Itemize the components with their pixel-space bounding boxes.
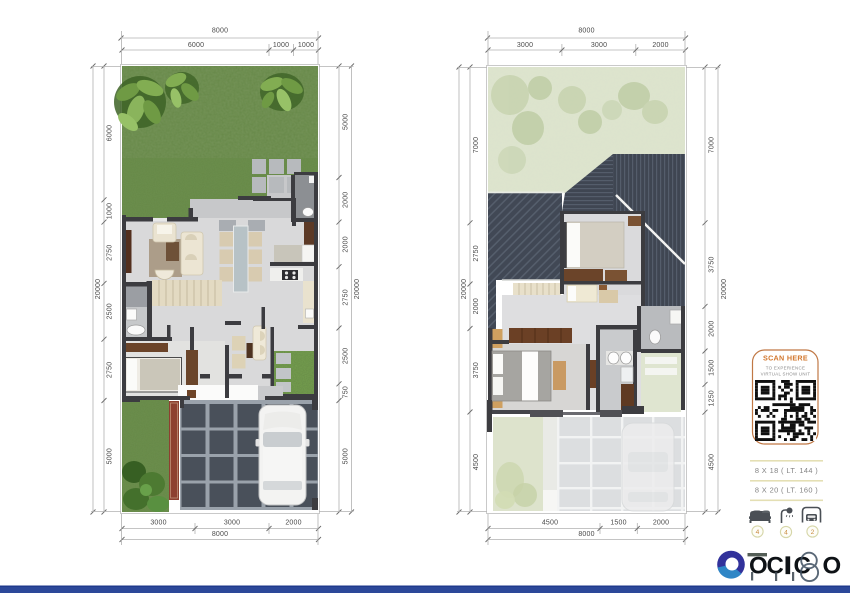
svg-text:6000: 6000 [107,125,114,141]
svg-text:20000: 20000 [95,279,102,299]
svg-text:2750: 2750 [473,245,480,261]
svg-text:5000: 5000 [343,114,350,130]
svg-text:2000: 2000 [652,42,668,49]
svg-text:5000: 5000 [107,448,114,464]
svg-text:7000: 7000 [709,137,716,153]
svg-text:VIRTUAL SHOW UNIT: VIRTUAL SHOW UNIT [761,372,811,377]
svg-text:7000: 7000 [473,137,480,153]
svg-text:3750: 3750 [709,256,716,272]
svg-text:8 X 18 ( LT. 144 ): 8 X 18 ( LT. 144 ) [755,466,818,475]
svg-text:8000: 8000 [212,28,228,35]
svg-text:3000: 3000 [591,42,607,49]
svg-text:2750: 2750 [107,245,114,261]
svg-text:4500: 4500 [542,520,558,527]
svg-text:20000: 20000 [721,279,728,299]
svg-text:TO EXPERIENCE: TO EXPERIENCE [766,366,805,371]
svg-text:3750: 3750 [473,362,480,378]
svg-text:3000: 3000 [150,520,166,527]
svg-text:2000: 2000 [653,520,669,527]
svg-text:2000: 2000 [709,321,716,337]
svg-text:1250: 1250 [709,390,716,406]
svg-text:8000: 8000 [212,531,228,538]
svg-text:4: 4 [756,529,760,536]
svg-text:2000: 2000 [343,192,350,208]
svg-text:20000: 20000 [354,279,361,299]
svg-text:20000: 20000 [461,279,468,299]
svg-text:2500: 2500 [343,348,350,364]
svg-text:1000: 1000 [273,42,289,49]
svg-text:2000: 2000 [473,298,480,314]
svg-text:4500: 4500 [473,454,480,470]
svg-text:I: I [785,553,792,580]
svg-text:750: 750 [343,386,350,398]
svg-text:2000: 2000 [343,236,350,252]
svg-text:6000: 6000 [188,42,204,49]
svg-text:3000: 3000 [224,520,240,527]
svg-text:5000: 5000 [343,448,350,464]
svg-text:8000: 8000 [578,28,594,35]
svg-text:O: O [823,553,842,580]
svg-text:8 X 20 ( LT. 160 ): 8 X 20 ( LT. 160 ) [755,486,818,495]
svg-text:2750: 2750 [107,362,114,378]
svg-text:1500: 1500 [709,360,716,376]
svg-text:1000: 1000 [107,203,114,219]
svg-text:8000: 8000 [578,531,594,538]
svg-text:1000: 1000 [298,42,314,49]
svg-text:1500: 1500 [610,520,626,527]
svg-text:4500: 4500 [709,454,716,470]
svg-text:SCAN HERE: SCAN HERE [763,354,808,363]
svg-text:4: 4 [784,530,788,537]
svg-text:2500: 2500 [107,303,114,319]
svg-text:2750: 2750 [343,289,350,305]
svg-text:3000: 3000 [517,42,533,49]
svg-text:2000: 2000 [285,520,301,527]
svg-text:2: 2 [811,529,815,536]
